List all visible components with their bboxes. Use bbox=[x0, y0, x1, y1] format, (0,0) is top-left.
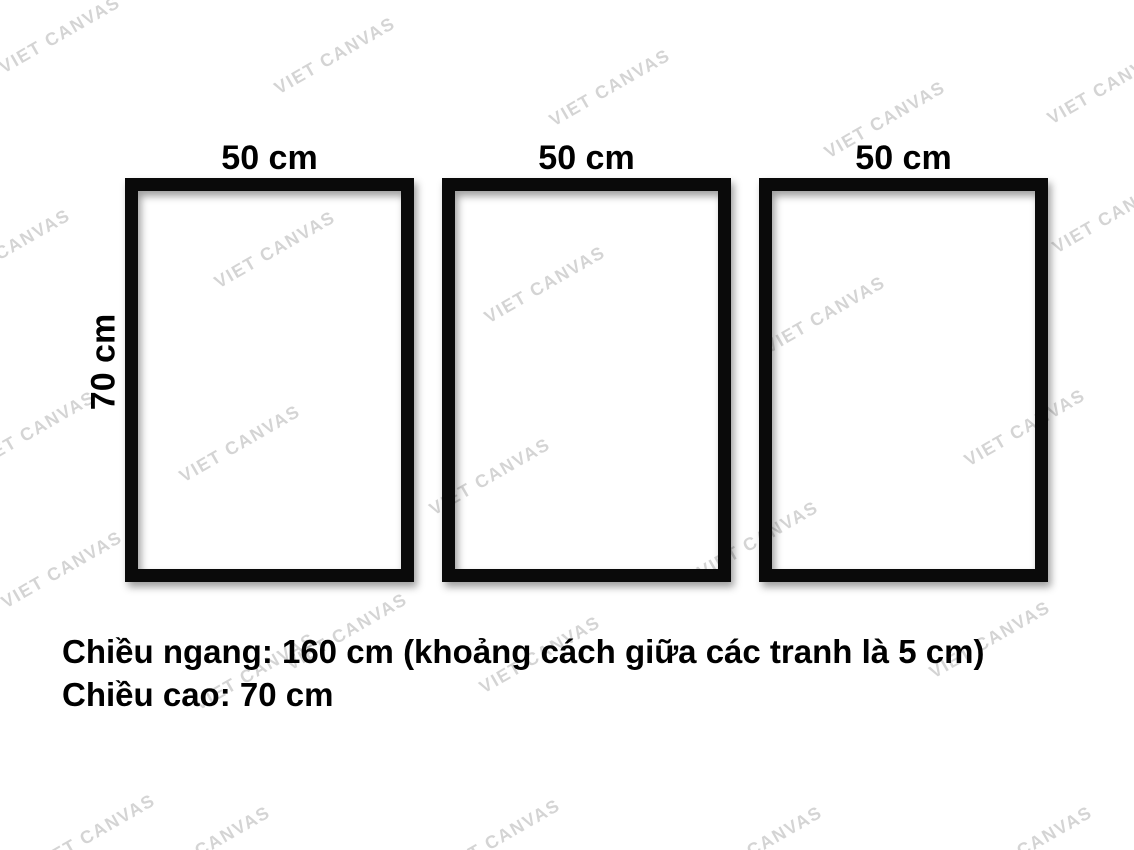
dimension-diagram: VIET CANVASVIET CANVASVIET CANVASVIET CA… bbox=[0, 0, 1134, 850]
viet-canvas-watermark: VIET CANVAS bbox=[0, 0, 124, 78]
frame-3-box bbox=[759, 178, 1048, 582]
viet-canvas-watermark: VIET CANVAS bbox=[146, 802, 274, 850]
frame-column-1: 50 cm bbox=[125, 130, 414, 582]
caption-line-height: Chiều cao: 70 cm bbox=[62, 673, 985, 716]
viet-canvas-watermark: VIET CANVAS bbox=[436, 795, 564, 850]
viet-canvas-watermark: VIET CANVAS bbox=[0, 527, 126, 613]
frames-height-label: 70 cm bbox=[85, 314, 124, 410]
frame-1-width-label: 50 cm bbox=[221, 130, 317, 178]
frame-3-width-label: 50 cm bbox=[855, 130, 951, 178]
caption: Chiều ngang: 160 cm (khoảng cách giữa cá… bbox=[62, 630, 985, 716]
viet-canvas-watermark: VIET CANVAS bbox=[698, 802, 826, 850]
frame-2-width-label: 50 cm bbox=[538, 130, 634, 178]
viet-canvas-watermark: VIET CANVAS bbox=[0, 205, 74, 291]
frame-2-box bbox=[442, 178, 731, 582]
frame-1-box bbox=[125, 178, 414, 582]
frame-column-2: 50 cm bbox=[442, 130, 731, 582]
viet-canvas-watermark: VIET CANVAS bbox=[546, 45, 674, 131]
viet-canvas-watermark: VIET CANVAS bbox=[1049, 172, 1134, 258]
viet-canvas-watermark: VIET CANVAS bbox=[1044, 43, 1134, 129]
viet-canvas-watermark: VIET CANVAS bbox=[31, 790, 159, 850]
frames-row: 50 cm 50 cm 50 cm bbox=[125, 130, 1048, 582]
caption-line-width: Chiều ngang: 160 cm (khoảng cách giữa cá… bbox=[62, 630, 985, 673]
frame-column-3: 50 cm bbox=[759, 130, 1048, 582]
viet-canvas-watermark: VIET CANVAS bbox=[968, 802, 1096, 850]
viet-canvas-watermark: VIET CANVAS bbox=[271, 13, 399, 99]
